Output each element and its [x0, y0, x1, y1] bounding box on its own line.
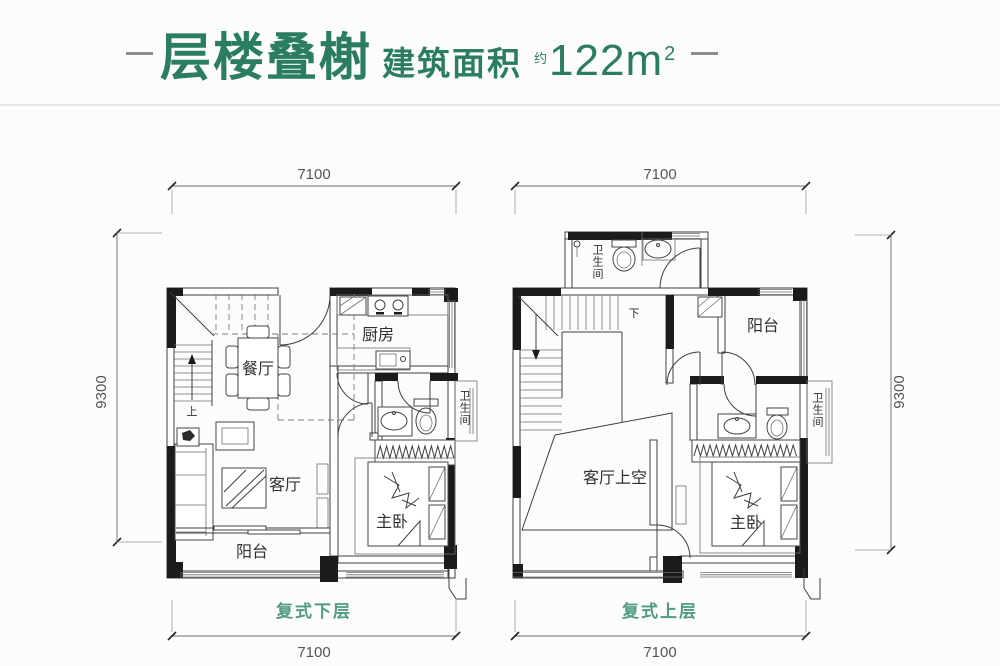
- lower-wardrobe-symbol: [375, 440, 455, 465]
- dim-value: 7100: [297, 166, 330, 183]
- upper-bathroom-fixtures: [718, 384, 788, 439]
- dimension-lower-side: 9300: [93, 229, 162, 546]
- bathroom-sink-icon: [718, 414, 756, 438]
- room-label-bath: 卫生间: [811, 392, 824, 428]
- water-heater-cabinet: [698, 297, 722, 317]
- dimension-upper-top: 7100: [511, 166, 810, 214]
- caption-lower-floor: 复式下层: [275, 601, 352, 621]
- room-label-master: 主卧: [730, 514, 762, 532]
- upper-top-bathroom-door-arc: [660, 248, 700, 288]
- tv-cabinet-symbol: [317, 464, 328, 528]
- floorplan-drawing: 餐厅 厨房 卫生间 客厅 主卧 阳台 上: [0, 0, 1000, 666]
- room-label-bath: 卫生间: [458, 390, 471, 426]
- toilet-icon: [767, 408, 788, 439]
- fridge-icon: [340, 297, 366, 315]
- room-label-kitchen: 厨房: [362, 326, 394, 344]
- rug-symbol: [222, 468, 266, 508]
- room-label-living: 客厅: [269, 476, 301, 494]
- bathroom-sink-icon: [643, 239, 675, 260]
- room-label-living-void: 客厅上空: [583, 469, 647, 487]
- lower-stairs-symbol: [170, 292, 214, 406]
- upper-bed-symbol: [700, 457, 800, 553]
- lower-bed-symbol: [355, 458, 455, 554]
- dimension-lower-top: 7100: [168, 166, 460, 214]
- upper-bathroom-door-arc: [724, 384, 756, 416]
- lower-corridor-door-arc: [337, 373, 368, 404]
- lower-plan: 餐厅 厨房 卫生间 客厅 主卧 阳台 上: [167, 288, 477, 599]
- upper-stairs-symbol: [518, 296, 622, 430]
- toilet-icon: [414, 399, 438, 434]
- upper-wardrobe-symbol: [692, 440, 800, 462]
- room-label-dining: 餐厅: [242, 360, 274, 378]
- caption-upper-floor: 复式上层: [621, 601, 698, 621]
- room-label-bath-top: 卫生间: [591, 244, 604, 280]
- toilet-icon: [612, 240, 636, 271]
- bathroom-sink-icon: [378, 407, 412, 436]
- armchair-symbol: [216, 422, 254, 450]
- plant-table-symbol: [177, 428, 199, 446]
- dim-value: 7100: [297, 644, 330, 661]
- dim-value: 9300: [891, 375, 908, 408]
- shower-head-icon: [574, 241, 580, 257]
- stove-icon: [368, 296, 408, 316]
- dimension-upper-side: 9300: [855, 231, 908, 554]
- kitchen-sink-icon: [376, 351, 410, 369]
- stair-direction-label: 下: [629, 308, 640, 320]
- floorplan-page: 层楼叠榭 建筑面积 约 122m 2: [0, 0, 1000, 666]
- upper-plan: 卫生间 阳台 客厅上空 主卧 卫生间 下: [513, 232, 832, 599]
- stair-direction-label: 上: [187, 405, 198, 418]
- dim-value: 7100: [643, 644, 676, 661]
- entrance-door-arc: [280, 295, 330, 345]
- stair-down-arrow-icon: [532, 350, 540, 360]
- dim-value: 9300: [93, 375, 110, 408]
- lower-living-furniture: [175, 422, 328, 540]
- room-label-master: 主卧: [376, 513, 408, 531]
- lower-bathroom-fixtures: [378, 381, 438, 436]
- dim-value: 7100: [643, 166, 676, 183]
- sofa-symbol: [175, 444, 213, 540]
- room-label-balcony: 阳台: [236, 543, 268, 561]
- room-label-balcony: 阳台: [747, 317, 779, 335]
